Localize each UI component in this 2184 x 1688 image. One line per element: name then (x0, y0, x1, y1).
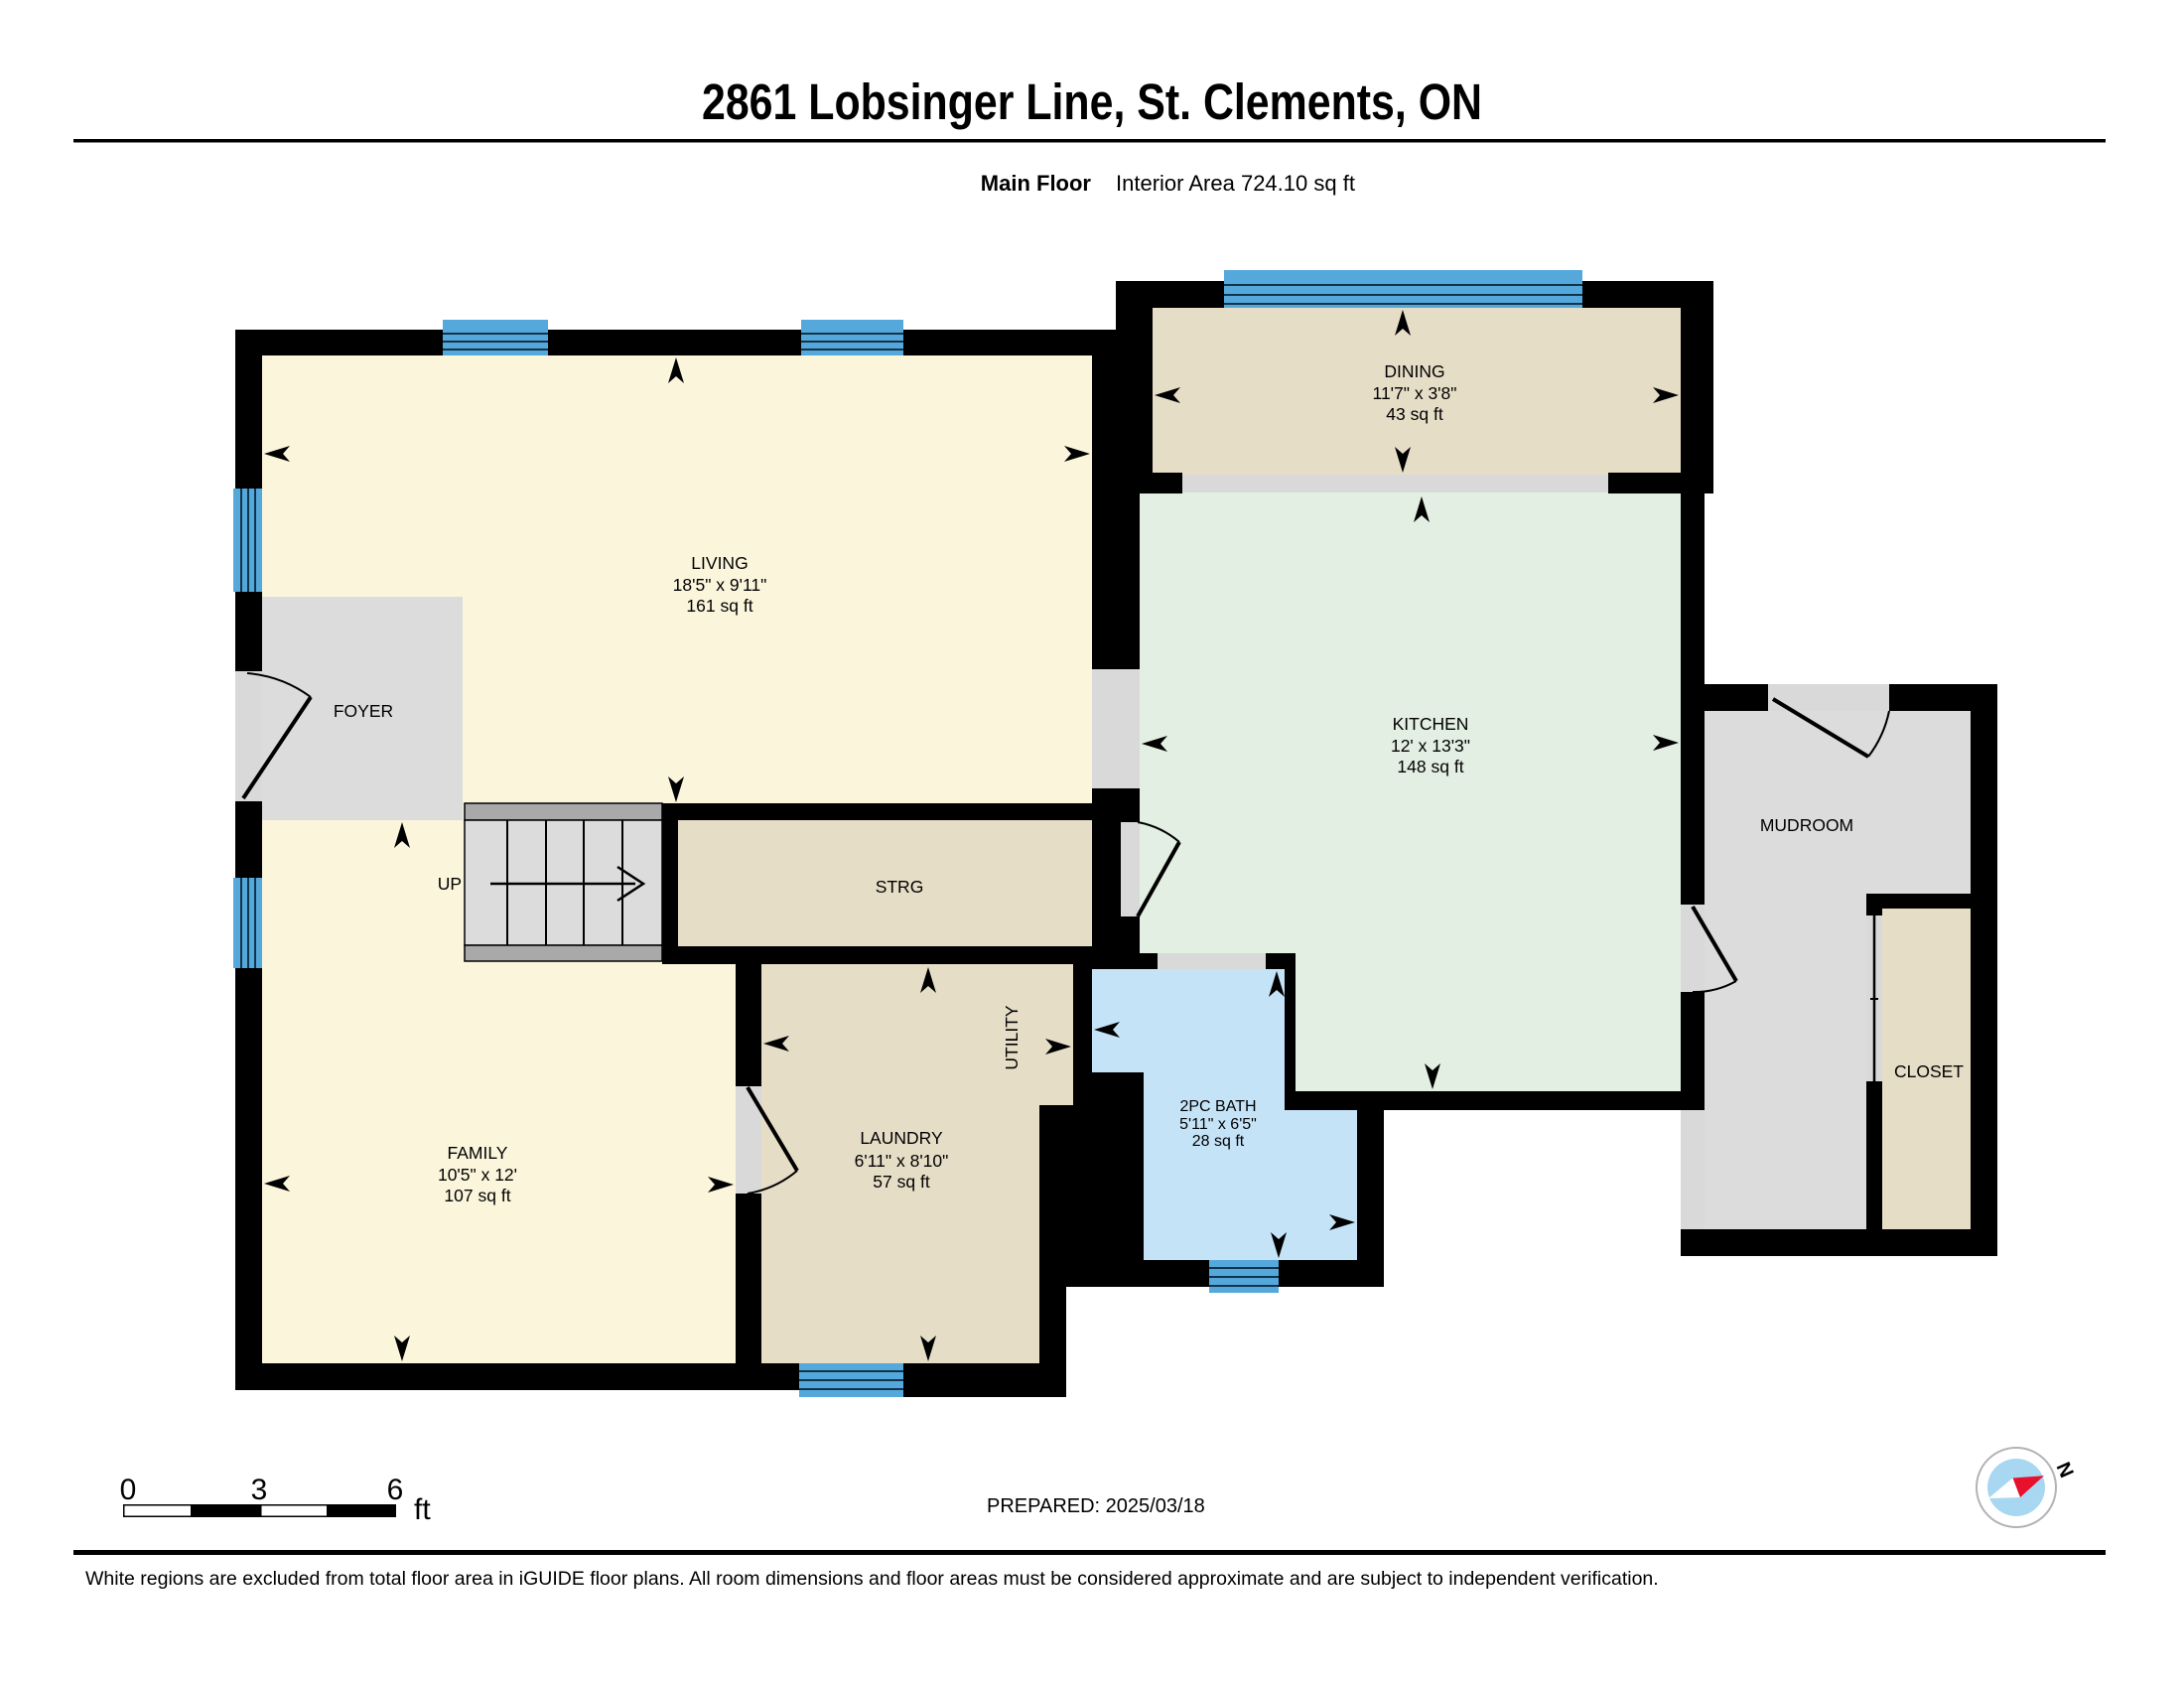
svg-text:6'11" x 8'10": 6'11" x 8'10" (855, 1151, 949, 1171)
svg-text:DINING: DINING (1384, 361, 1444, 381)
svg-text:2861 Lobsinger Line, St. Cleme: 2861 Lobsinger Line, St. Clements, ON (702, 73, 1482, 130)
svg-text:KITCHEN: KITCHEN (1393, 714, 1469, 734)
svg-text:11'7" x 3'8": 11'7" x 3'8" (1373, 383, 1457, 403)
svg-text:161 sq ft: 161 sq ft (686, 596, 752, 616)
svg-text:28 sq ft: 28 sq ft (1192, 1133, 1245, 1150)
svg-text:2PC BATH: 2PC BATH (1179, 1098, 1256, 1115)
svg-text:43 sq ft: 43 sq ft (1386, 404, 1443, 424)
svg-text:UTILITY: UTILITY (1002, 1005, 1022, 1069)
svg-text:6: 6 (387, 1474, 404, 1506)
svg-text:10'5" x 12': 10'5" x 12' (438, 1165, 517, 1185)
svg-text:FOYER: FOYER (334, 701, 393, 721)
svg-text:STRG: STRG (876, 877, 924, 897)
svg-text:FAMILY: FAMILY (448, 1143, 508, 1163)
svg-text:57 sq ft: 57 sq ft (873, 1172, 930, 1192)
svg-text:ft: ft (414, 1493, 431, 1526)
svg-text:Main Floor: Main Floor (981, 171, 1092, 196)
svg-text:MUDROOM: MUDROOM (1760, 815, 1853, 835)
svg-text:White regions are excluded fro: White regions are excluded from total fl… (85, 1568, 1659, 1590)
svg-text:107 sq ft: 107 sq ft (444, 1186, 510, 1205)
svg-text:12' x 13'3": 12' x 13'3" (1391, 736, 1470, 756)
svg-text:CLOSET: CLOSET (1894, 1061, 1964, 1081)
svg-text:LIVING: LIVING (691, 553, 748, 573)
svg-text:148 sq ft: 148 sq ft (1397, 757, 1463, 776)
svg-text:3: 3 (251, 1474, 268, 1506)
svg-text:0: 0 (120, 1474, 137, 1506)
svg-text:LAUNDRY: LAUNDRY (860, 1128, 943, 1148)
svg-text:5'11" x 6'5": 5'11" x 6'5" (1179, 1116, 1257, 1133)
svg-text:PREPARED: 2025/03/18: PREPARED: 2025/03/18 (987, 1495, 1205, 1517)
svg-text:UP: UP (438, 874, 462, 894)
svg-text:18'5" x 9'11": 18'5" x 9'11" (673, 575, 767, 595)
svg-text:Interior Area 724.10 sq ft: Interior Area 724.10 sq ft (1116, 171, 1355, 196)
